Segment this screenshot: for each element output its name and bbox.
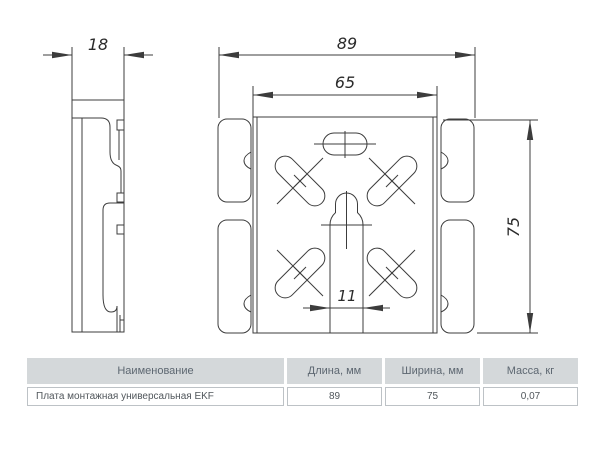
table-row: Плата монтажная универсальная EKF 89 75 … <box>27 387 578 406</box>
tab-notch <box>441 295 448 312</box>
cell-product-name: Плата монтажная универсальная EKF <box>27 387 284 406</box>
side-view-top-hook <box>72 118 121 193</box>
tab-notch <box>441 152 448 169</box>
arrowhead <box>310 305 330 311</box>
arrowhead <box>253 92 273 98</box>
tab-notch <box>244 295 251 312</box>
dimension-label-75: 75 <box>504 217 523 237</box>
side-view-notch <box>117 120 124 130</box>
col-header-width: Ширина, мм <box>385 358 480 384</box>
side-view-notch <box>117 193 124 202</box>
dimension-label-89: 89 <box>337 34 357 53</box>
arrowhead <box>527 120 533 140</box>
tab-left-bottom <box>218 220 251 333</box>
arrowhead <box>219 52 239 58</box>
arrowhead <box>124 52 144 58</box>
col-header-length: Длина, мм <box>287 358 382 384</box>
side-view-notch <box>117 225 124 234</box>
dimension-18: 18 <box>43 35 153 100</box>
arrowhead <box>52 52 72 58</box>
col-header-mass: Масса, кг <box>483 358 578 384</box>
spec-table: Наименование Длина, мм Ширина, мм Масса,… <box>27 358 578 406</box>
dimension-label-18: 18 <box>88 35 108 54</box>
arrowhead <box>527 313 533 333</box>
arrowhead <box>417 92 437 98</box>
dimension-65: 65 <box>253 73 437 117</box>
arrowhead <box>363 305 383 311</box>
dimension-label-65: 65 <box>335 73 355 92</box>
tab-right-top <box>441 119 474 202</box>
page: 18 89 65 75 <box>0 0 600 450</box>
cell-mass: 0,07 <box>483 387 578 406</box>
tab-notch <box>244 152 251 169</box>
spec-table-header: Наименование Длина, мм Ширина, мм Масса,… <box>27 358 578 384</box>
dimension-label-11: 11 <box>337 287 356 305</box>
cell-width: 75 <box>385 387 480 406</box>
col-header-name: Наименование <box>27 358 284 384</box>
dimension-75: 75 <box>443 120 538 333</box>
side-view <box>72 100 124 332</box>
arrowhead <box>455 52 475 58</box>
tab-left-top <box>218 119 251 202</box>
technical-drawing: 18 89 65 75 <box>0 0 600 345</box>
dimension-11: 11 <box>303 287 390 311</box>
tab-right-bottom <box>441 220 474 333</box>
side-view-outline <box>72 100 124 332</box>
side-view-bottom-hook <box>103 203 124 332</box>
cell-length: 89 <box>287 387 382 406</box>
